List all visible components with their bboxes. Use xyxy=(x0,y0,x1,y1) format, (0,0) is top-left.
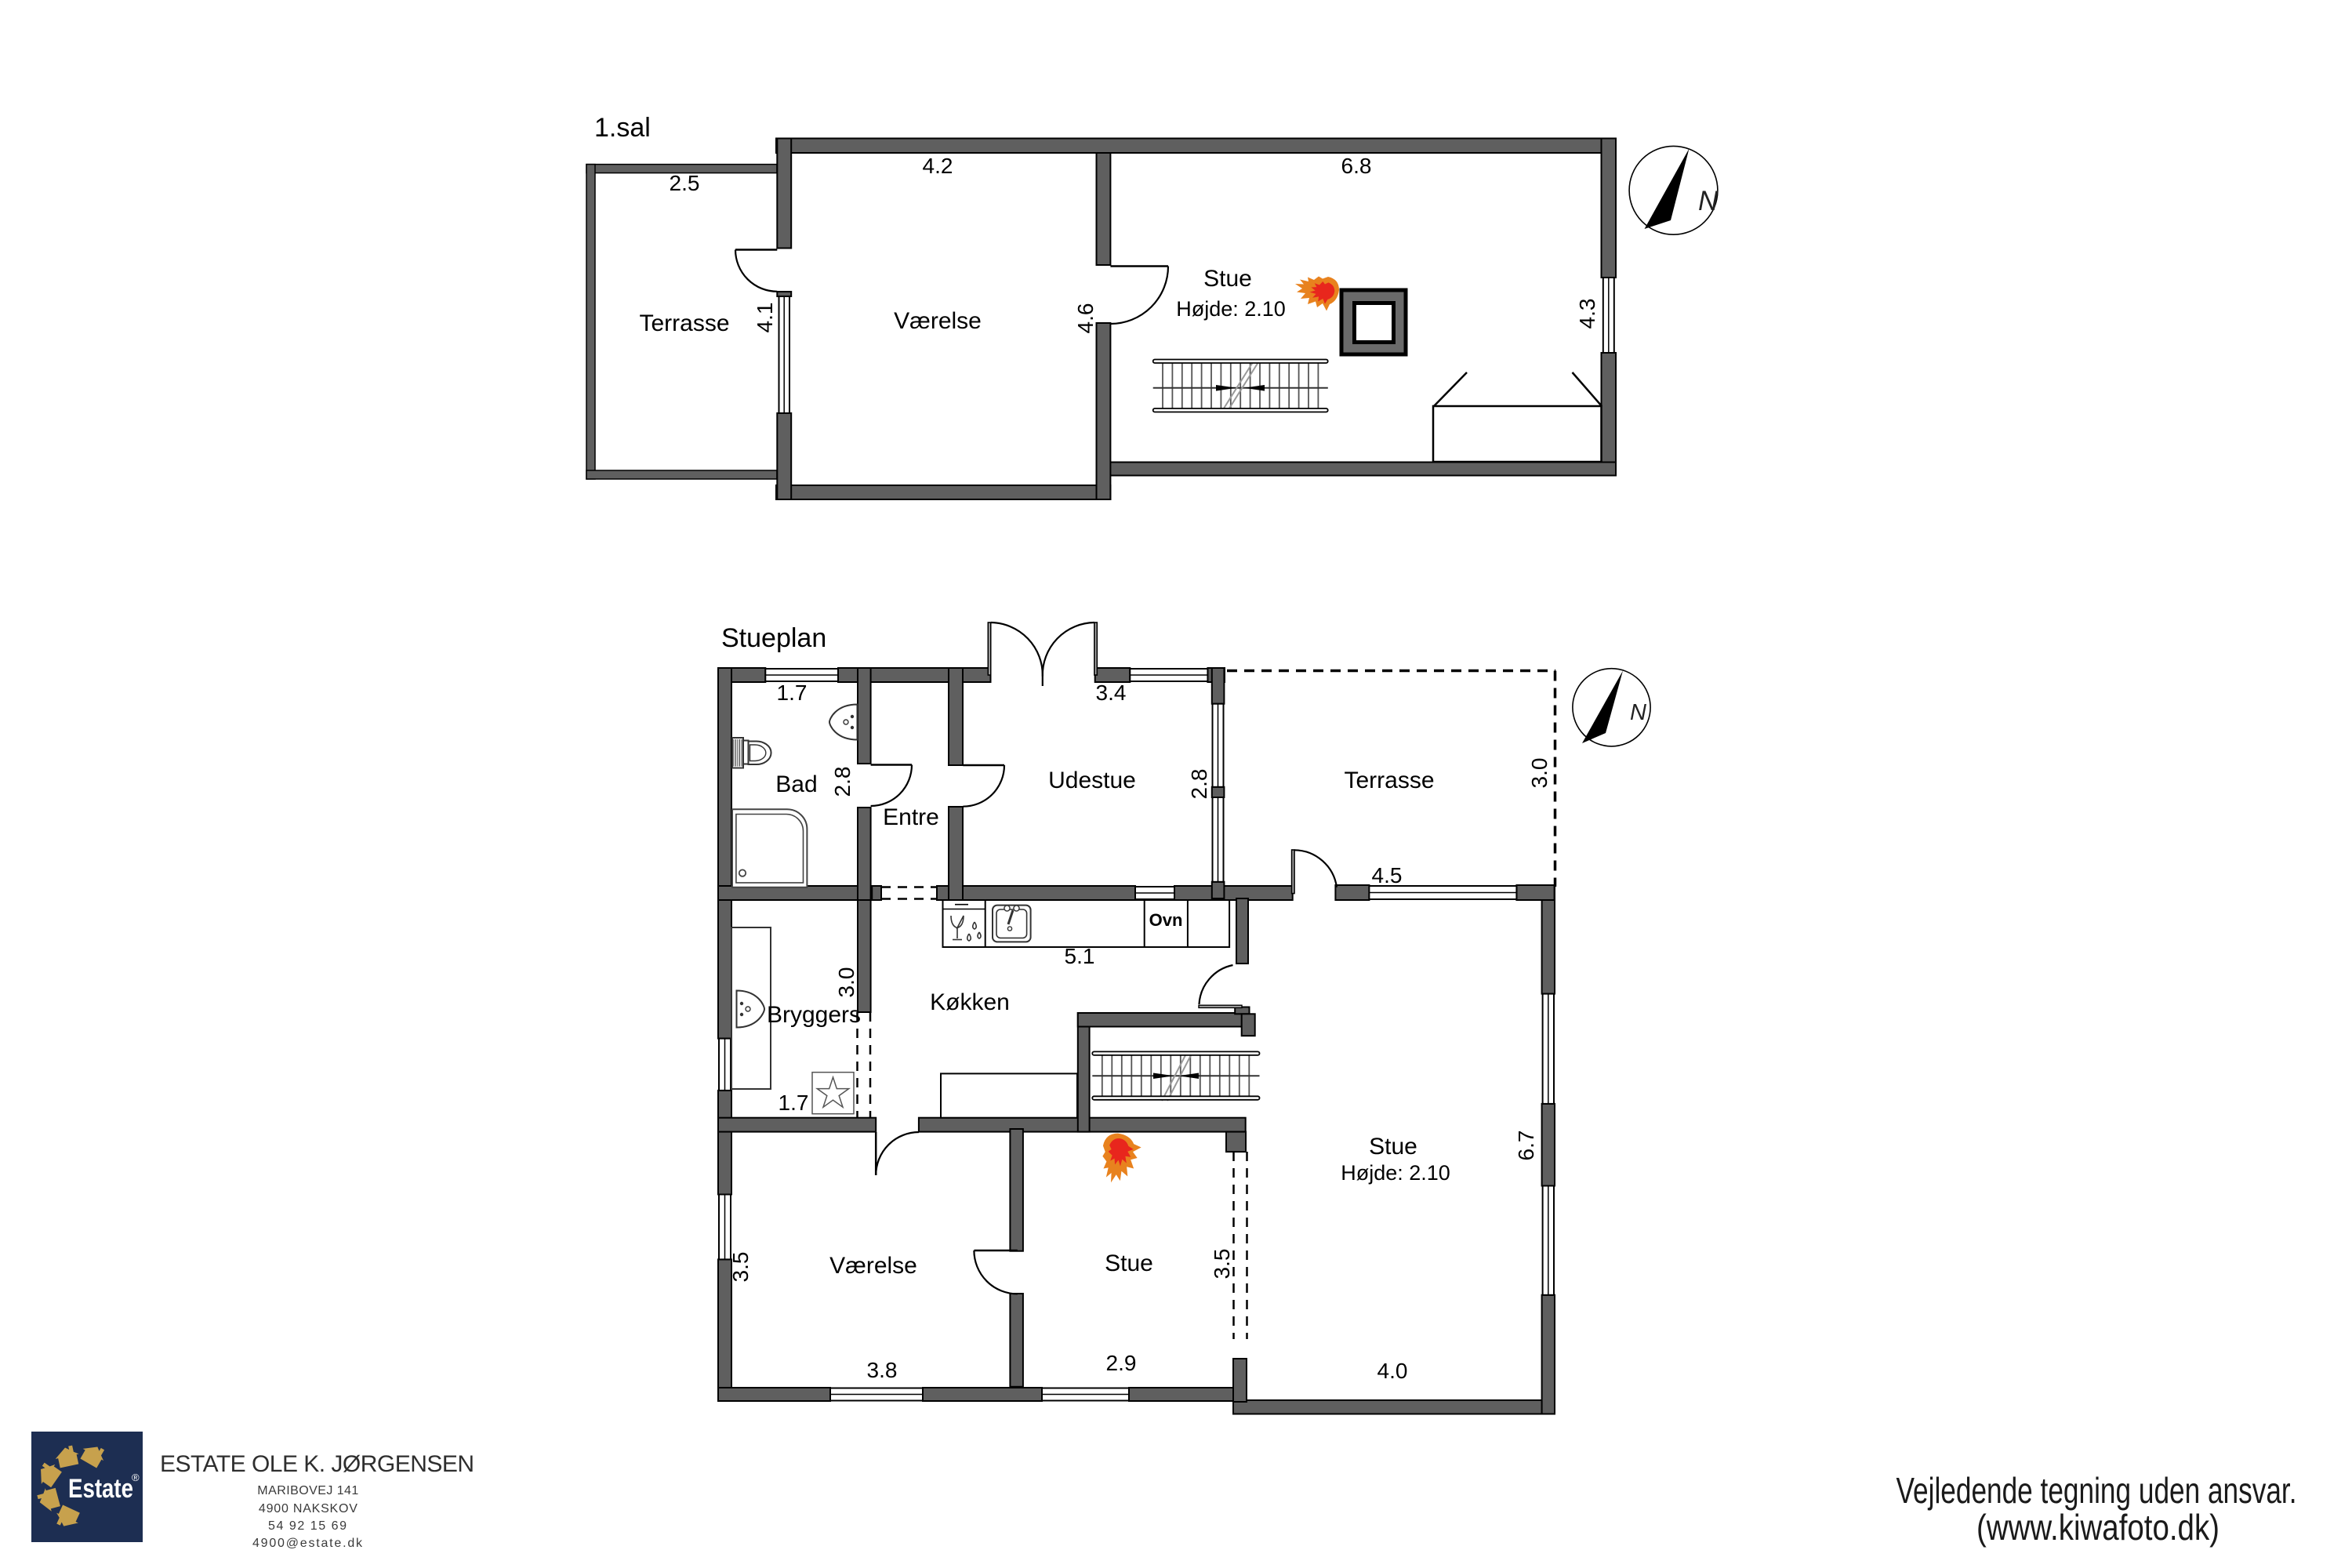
svg-text:Udestue: Udestue xyxy=(1048,768,1136,793)
svg-text:4.3: 4.3 xyxy=(1575,299,1599,329)
svg-text:Højde: 2.10: Højde: 2.10 xyxy=(1176,297,1286,321)
svg-text:4.5: 4.5 xyxy=(1372,863,1403,887)
svg-text:Stue: Stue xyxy=(1369,1134,1417,1160)
svg-text:MARIBOVEJ 141: MARIBOVEJ 141 xyxy=(257,1484,358,1497)
svg-text:4.1: 4.1 xyxy=(753,303,777,333)
svg-text:4.2: 4.2 xyxy=(923,154,953,178)
svg-text:1.7: 1.7 xyxy=(779,1091,809,1115)
svg-text:Værelse: Værelse xyxy=(829,1253,917,1279)
svg-text:1.sal: 1.sal xyxy=(594,113,651,143)
svg-text:Stue: Stue xyxy=(1203,266,1252,292)
svg-text:4900@estate.dk: 4900@estate.dk xyxy=(252,1537,363,1550)
svg-text:(www.kiwafoto.dk): (www.kiwafoto.dk) xyxy=(1976,1507,2220,1548)
svg-text:ESTATE OLE K. JØRGENSEN: ESTATE OLE K. JØRGENSEN xyxy=(160,1451,477,1477)
svg-text:N: N xyxy=(1698,186,1719,216)
svg-text:Køkken: Køkken xyxy=(930,989,1010,1015)
svg-text:Estate: Estate xyxy=(68,1474,133,1504)
svg-text:Værelse: Værelse xyxy=(894,308,982,334)
svg-text:54 92 15 69: 54 92 15 69 xyxy=(268,1519,347,1533)
svg-text:Entre: Entre xyxy=(883,804,939,830)
svg-text:4.6: 4.6 xyxy=(1073,303,1098,334)
svg-text:Vejledende tegning uden ansvar: Vejledende tegning uden ansvar. xyxy=(1896,1470,2297,1511)
svg-text:Terrasse: Terrasse xyxy=(1344,768,1434,793)
svg-text:®: ® xyxy=(132,1472,140,1483)
svg-text:2.8: 2.8 xyxy=(1187,769,1211,800)
svg-text:4.0: 4.0 xyxy=(1377,1359,1408,1383)
svg-text:Ovn: Ovn xyxy=(1149,910,1183,930)
svg-text:4900 NAKSKOV: 4900 NAKSKOV xyxy=(259,1502,358,1515)
svg-text:3.5: 3.5 xyxy=(1210,1249,1234,1279)
svg-text:2.5: 2.5 xyxy=(670,171,700,195)
svg-text:Terrasse: Terrasse xyxy=(639,310,729,336)
svg-text:Højde: 2.10: Højde: 2.10 xyxy=(1341,1161,1450,1185)
svg-text:Stueplan: Stueplan xyxy=(721,623,826,653)
svg-text:N: N xyxy=(1630,700,1646,725)
svg-text:3.4: 3.4 xyxy=(1096,681,1127,705)
svg-text:3.0: 3.0 xyxy=(834,967,858,998)
svg-text:3.8: 3.8 xyxy=(867,1358,898,1382)
svg-text:5.1: 5.1 xyxy=(1065,944,1095,968)
svg-text:6.8: 6.8 xyxy=(1341,154,1372,178)
svg-text:3.5: 3.5 xyxy=(728,1252,753,1283)
svg-text:2.9: 2.9 xyxy=(1106,1351,1137,1375)
svg-text:6.7: 6.7 xyxy=(1514,1131,1538,1161)
svg-text:Stue: Stue xyxy=(1105,1250,1153,1276)
svg-text:2.8: 2.8 xyxy=(830,767,855,797)
svg-text:1.7: 1.7 xyxy=(777,681,808,705)
svg-text:Bad: Bad xyxy=(775,771,817,797)
svg-text:3.0: 3.0 xyxy=(1527,758,1552,789)
svg-text:Bryggers: Bryggers xyxy=(767,1002,861,1028)
